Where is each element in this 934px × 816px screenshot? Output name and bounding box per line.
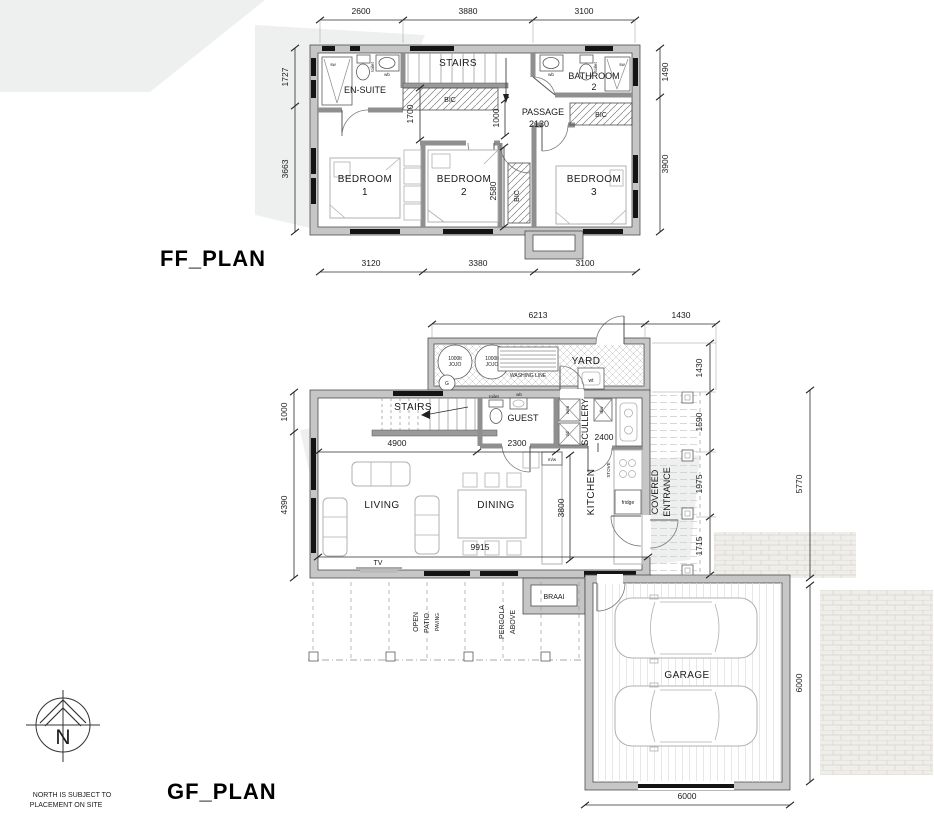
dim-label: 9915 bbox=[471, 542, 490, 552]
room-label-dining: DINING bbox=[477, 500, 514, 511]
dim-label: 3100 bbox=[575, 6, 594, 16]
room-label-passage: PASSAGE bbox=[522, 107, 564, 117]
dim-label: 1430 bbox=[694, 358, 704, 377]
dim-label: 1490 bbox=[660, 62, 670, 81]
north-arrow: N bbox=[26, 690, 100, 762]
fixture-label-shower: sw bbox=[330, 62, 336, 67]
dim-label: 1000 bbox=[491, 108, 501, 127]
fixture-label-fridge: fridge bbox=[622, 500, 635, 506]
geyser-label: G bbox=[445, 381, 449, 387]
yard-door-opening bbox=[596, 337, 624, 345]
pergola-label: PERGOLA bbox=[499, 605, 506, 639]
gf-plan: 1000lt JOJO 1000lt JOJO G WASHING LINE Y… bbox=[167, 310, 933, 808]
pergola-post bbox=[541, 652, 550, 661]
room-label-bedroom2: BEDROOM bbox=[437, 174, 491, 185]
dim-label: 2130 bbox=[529, 119, 549, 129]
dim-label: 3100 bbox=[576, 258, 595, 268]
fixture-label-basin: wb bbox=[384, 72, 390, 77]
room-label-guest: GUEST bbox=[507, 413, 539, 423]
gf-garage: GARAGE bbox=[585, 574, 790, 790]
dim-label: 1700 bbox=[405, 104, 415, 123]
gf-yard: 1000lt JOJO 1000lt JOJO G WASHING LINE Y… bbox=[428, 316, 650, 392]
ff-plan-title: FF_PLAN bbox=[160, 246, 266, 271]
fixture-label-dw: d/w bbox=[599, 406, 604, 414]
watermark-shape bbox=[0, 0, 265, 92]
washing-line-label: WASHING LINE bbox=[510, 373, 547, 379]
garage-side-door-opening bbox=[597, 574, 623, 584]
bic-label: BIC bbox=[444, 97, 456, 104]
jojo-label: JOJO bbox=[486, 362, 499, 368]
dim-label: 1715 bbox=[694, 536, 704, 555]
ff-plan: 2600 3880 3100 3120 3380 3100 1727 3663 … bbox=[160, 6, 670, 275]
dining-table bbox=[458, 490, 526, 538]
room-label-bedroom1: BEDROOM bbox=[338, 174, 392, 185]
car bbox=[615, 683, 757, 751]
pergola-post bbox=[309, 652, 318, 661]
bic-label: BIC bbox=[595, 112, 607, 119]
car bbox=[615, 595, 757, 663]
dim-label: 1590 bbox=[694, 412, 704, 431]
fixture-label-stove: STOVE bbox=[606, 462, 611, 477]
gf-covered-entrance: COVERED ENTRANCE bbox=[650, 392, 700, 578]
room-label-covered: COVERED bbox=[650, 469, 660, 514]
dim-label: 1975 bbox=[694, 474, 704, 493]
column bbox=[682, 450, 693, 461]
dim-label: 3380 bbox=[469, 258, 488, 268]
fixture-label-toilet: toilet bbox=[370, 62, 375, 72]
gf-braai: BRAAI bbox=[523, 578, 585, 614]
room-label-scullery: SCULLERY bbox=[580, 398, 590, 445]
fixture-label-toilet: toilet bbox=[489, 394, 499, 399]
shower-tray bbox=[322, 57, 352, 105]
toilet-cistern bbox=[489, 400, 503, 407]
north-letter: N bbox=[55, 726, 70, 749]
room-label-stairs: STAIRS bbox=[394, 402, 432, 413]
basin bbox=[543, 58, 559, 69]
wash-trough-label: wt bbox=[589, 378, 595, 384]
fixture-label-shower: sw bbox=[619, 62, 625, 67]
north-note-line2: PLACEMENT ON SITE bbox=[30, 802, 103, 809]
paving-patch bbox=[820, 590, 933, 775]
fixture-label-wm: w/m bbox=[565, 406, 570, 415]
dim-label: 4390 bbox=[279, 495, 289, 514]
dim-label: 3880 bbox=[459, 6, 478, 16]
garage-door bbox=[638, 784, 734, 788]
dim-label: 5770 bbox=[794, 474, 804, 493]
dim-label: 1727 bbox=[280, 67, 290, 86]
column bbox=[682, 508, 693, 519]
room-label-stairs: STAIRS bbox=[439, 58, 477, 69]
jojo-label: JOJO bbox=[449, 362, 462, 368]
floor-plan-sheet: 2600 3880 3100 3120 3380 3100 1727 3663 … bbox=[0, 0, 934, 816]
room-label-bedroom1-num: 1 bbox=[362, 187, 368, 198]
room-label-bathroom-num: 2 bbox=[591, 82, 596, 92]
room-label-kitchen: KITCHEN bbox=[586, 469, 597, 516]
toilet-bowl bbox=[357, 64, 370, 80]
sofa bbox=[415, 496, 439, 554]
room-label-yard: YARD bbox=[572, 356, 601, 367]
pergola-post bbox=[386, 652, 395, 661]
room-label-entrance: ENTRANCE bbox=[662, 467, 672, 517]
dim-label: 6000 bbox=[678, 791, 697, 801]
dim-label: 6213 bbox=[529, 310, 548, 320]
fixture-label-tv: TV bbox=[374, 560, 383, 567]
patio-label: OPEN bbox=[413, 612, 420, 632]
dim-label: 2400 bbox=[595, 432, 614, 442]
room-label-living: LIVING bbox=[364, 500, 399, 511]
fixture-label-toilet: toilet bbox=[593, 62, 598, 72]
dim-label: 3800 bbox=[556, 498, 566, 517]
north-note-line1: NORTH IS SUBJECT TO bbox=[33, 792, 112, 799]
patio-label: PAVING bbox=[435, 613, 441, 631]
ff-chimney-void bbox=[533, 235, 575, 251]
dim-label: 4900 bbox=[388, 438, 407, 448]
dim-label: 3120 bbox=[362, 258, 381, 268]
paving-patch bbox=[714, 532, 856, 578]
north-note: NORTH IS SUBJECT TO PLACEMENT ON SITE bbox=[30, 792, 112, 809]
fixture-label-mw: m/w bbox=[548, 457, 557, 462]
bic-label: BIC bbox=[514, 190, 521, 202]
column bbox=[682, 392, 693, 403]
room-label-garage: GARAGE bbox=[664, 670, 709, 681]
room-label-braai: BRAAI bbox=[543, 594, 564, 601]
fixture-label-basin: wb bbox=[548, 72, 554, 77]
floor-plan-drawing: 2600 3880 3100 3120 3380 3100 1727 3663 … bbox=[0, 0, 934, 816]
dim-label: 1000 bbox=[279, 402, 289, 421]
sofa bbox=[352, 462, 410, 486]
pergola-post bbox=[464, 652, 473, 661]
room-label-bedroom3-num: 3 bbox=[591, 187, 597, 198]
sofa bbox=[323, 498, 347, 556]
pergola-label: ABOVE bbox=[510, 610, 517, 634]
gf-plan-title: GF_PLAN bbox=[167, 779, 277, 804]
patio-label: PATIO. bbox=[424, 611, 431, 633]
fixture-label-basin: wb bbox=[516, 392, 522, 397]
dim-label: 3900 bbox=[660, 154, 670, 173]
dim-label: 1430 bbox=[672, 310, 691, 320]
room-label-ensuite: EN-SUITE bbox=[344, 85, 386, 95]
dim-label: 6000 bbox=[794, 673, 804, 692]
tv bbox=[360, 569, 398, 573]
fixture-label-td: t/d bbox=[565, 431, 570, 437]
toilet-bowl bbox=[490, 409, 502, 424]
dim-label: 2300 bbox=[508, 438, 527, 448]
column bbox=[682, 565, 693, 576]
toilet-cistern bbox=[357, 55, 370, 63]
dim-label: 2600 bbox=[352, 6, 371, 16]
toilet-cistern bbox=[580, 55, 593, 63]
dim-label: 3663 bbox=[280, 159, 290, 178]
basin bbox=[379, 58, 395, 69]
room-label-bedroom2-num: 2 bbox=[461, 187, 467, 198]
room-label-bedroom3: BEDROOM bbox=[567, 174, 621, 185]
